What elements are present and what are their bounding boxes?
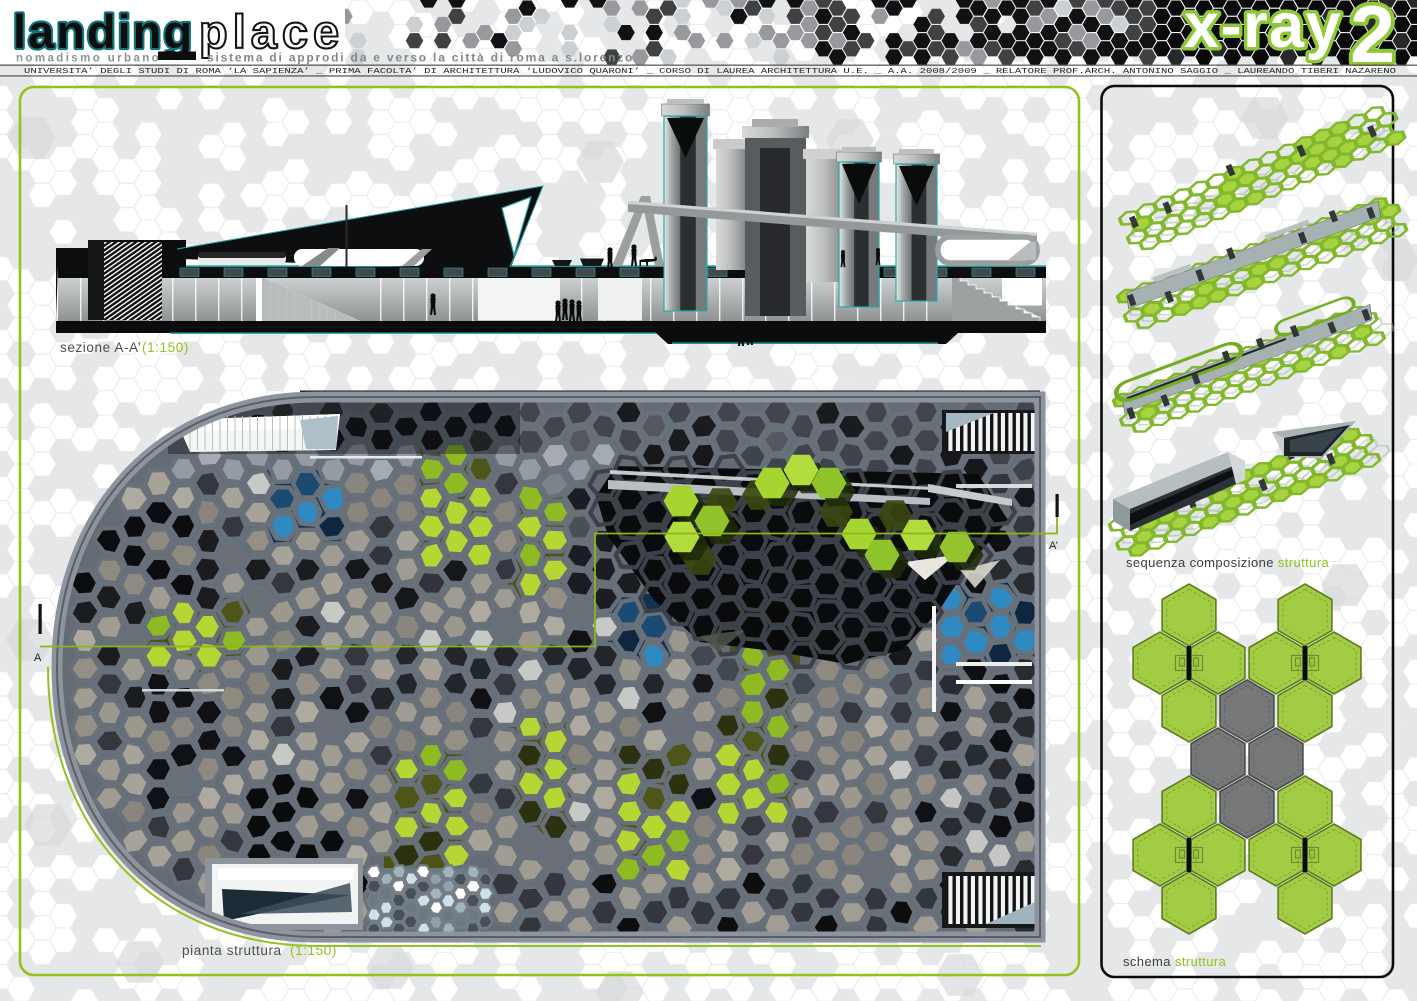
svg-text:nomadismo urbano: nomadismo urbano	[16, 53, 161, 65]
svg-text:sequenza composizione struttur: sequenza composizione struttura	[1126, 555, 1330, 570]
svg-text:sezione A-A’: sezione A-A’	[60, 340, 141, 355]
svg-text:landing: landing	[13, 5, 194, 58]
svg-text:sistema di approdi da e verso: sistema di approdi da e verso la città d…	[207, 51, 634, 65]
svg-text:UNIVERSITA’ DEGLI STUDI DI ROM: UNIVERSITA’ DEGLI STUDI DI ROMA ‘LA SAPI…	[24, 68, 1397, 76]
svg-text:A’: A’	[1049, 540, 1058, 552]
svg-text:(1:150): (1:150)	[290, 943, 337, 958]
svg-text:pianta struttura: pianta struttura	[182, 943, 282, 958]
svg-text:schema struttura: schema struttura	[1123, 954, 1227, 969]
svg-text:x-ray: x-ray	[1184, 0, 1342, 61]
svg-text:(1:150): (1:150)	[142, 340, 189, 355]
svg-text:A: A	[34, 652, 42, 664]
